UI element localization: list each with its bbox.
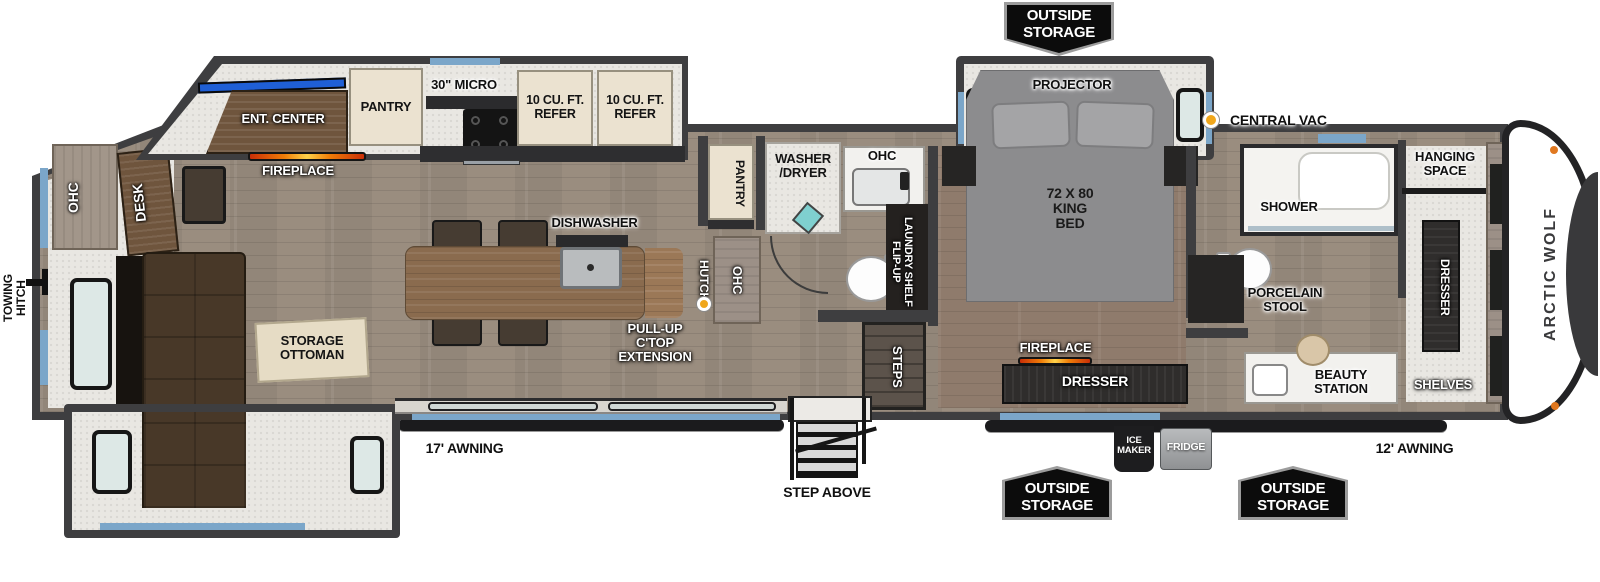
stove-burner (471, 116, 480, 125)
brand-logo: ARCTIC WOLF (1542, 188, 1566, 360)
sectional-sofa-slide-part (142, 412, 246, 508)
outside-storage-label: OUTSIDE STORAGE (1004, 2, 1114, 56)
beauty-station-label: BEAUTY STATION (1296, 368, 1386, 396)
island-chair (432, 316, 482, 346)
outside-storage-label: OUTSIDE STORAGE (1002, 466, 1112, 520)
central-vac-legend-icon (1203, 112, 1219, 128)
rear-window (70, 278, 112, 390)
step-above-label: STEP ABOVE (772, 485, 882, 500)
refer-2-label: 10 CU. FT. REFER (599, 94, 671, 121)
beauty-stool (1296, 334, 1330, 366)
central-vac-label: CENTRAL VAC (1230, 113, 1360, 128)
micro-label: 30" MICRO (418, 78, 510, 92)
bedroom-window-right (1176, 88, 1204, 142)
awning-rear-bar (398, 419, 784, 431)
awning-rear-label: 17' AWNING (412, 441, 517, 456)
bath-ohc-label: OHC (852, 149, 912, 163)
bedroom-fireplace-label: FIREPLACE (998, 341, 1113, 355)
beauty-sink (1252, 364, 1288, 396)
nightstand-left (942, 146, 976, 186)
pantry-counter (708, 220, 754, 229)
pull-up-ctop-label: PULL-UP C'TOP EXTENSION (605, 322, 705, 364)
refer-1-label: 10 CU. FT. REFER (519, 94, 591, 121)
bedroom-slide-window-accent-left (958, 92, 964, 144)
marker-light (1551, 402, 1559, 410)
countertop-extension (645, 248, 683, 318)
outside-storage-banner-bottom-right: OUTSIDE STORAGE (1238, 466, 1348, 520)
floorplan: 17' AWNING 12' AWNING TOWING HITCH OHC D… (0, 0, 1600, 582)
wall-beauty-top (1186, 328, 1248, 338)
sofa-slide-window-bottom (100, 523, 305, 530)
towing-hitch-post (42, 269, 48, 295)
sofa-slide-window-right (350, 436, 384, 494)
fireplace-living-label: FIREPLACE (238, 164, 358, 178)
rear-wall-window-2 (40, 330, 48, 385)
wall-pantry-left (698, 136, 708, 226)
flip-up-laundry-shelf-label: FLIP-UP LAUNDRY SHELF (889, 206, 925, 318)
door-side-window (608, 402, 776, 411)
sofa-slide-window-left (92, 430, 132, 494)
stove-burner (499, 116, 508, 125)
central-vac-port-icon (697, 297, 711, 311)
range-hood (426, 96, 520, 109)
outside-storage-label: OUTSIDE STORAGE (1238, 466, 1348, 520)
door-side-window-strip (412, 414, 780, 420)
bath-faucet (900, 172, 909, 190)
pantry-label: PANTRY (352, 100, 420, 114)
ohc-hutch-label: OHC (726, 244, 744, 316)
wall-bath-bottom (818, 310, 932, 322)
entry-landing (788, 396, 872, 422)
marker-light (1550, 146, 1558, 154)
outside-fridge-label: FRIDGE (1160, 442, 1212, 453)
ohc-rear-label: OHC (66, 158, 96, 238)
awning-front-bar (985, 420, 1447, 432)
dishwasher (556, 235, 628, 247)
dishwasher-label: DISHWASHER (542, 216, 647, 230)
bath-divider-cabinet (1188, 255, 1244, 323)
outside-storage-banner-top: OUTSIDE STORAGE (1004, 2, 1114, 56)
bed-pillow (1075, 101, 1155, 150)
shower-label: SHOWER (1244, 200, 1334, 214)
top-wall-window-bath (1318, 134, 1366, 143)
bedroom-dresser-label: DRESSER (1035, 374, 1155, 389)
bed-pillow (991, 101, 1071, 150)
porcelain-stool-label: PORCELAIN STOOL (1240, 286, 1330, 314)
king-bed-label: 72 X 80 KING BED (1020, 186, 1120, 231)
stove-handle (463, 160, 520, 165)
kitchen-slide-window (430, 58, 500, 65)
hanging-space-label: HANGING SPACE (1404, 150, 1486, 178)
steps-label: STEPS (884, 334, 904, 400)
kitchen-counter (420, 146, 685, 162)
projector-label: PROJECTOR (1017, 78, 1127, 92)
ent-center-label: ENT. CENTER (228, 112, 338, 126)
ice-maker-label: ICE MAKER (1114, 436, 1154, 457)
closet-dresser-label: DRESSER (1431, 232, 1451, 342)
outside-storage-banner-bottom-left: OUTSIDE STORAGE (1002, 466, 1112, 520)
desk-chair (182, 166, 226, 224)
sink-drain (587, 264, 594, 271)
entry-rail-left (790, 398, 794, 480)
fireplace-living (248, 152, 366, 161)
shower-glass (1248, 226, 1394, 231)
bottom-wall-window-bedroom (1000, 413, 1160, 420)
towing-hitch-label: TOWING HITCH (2, 252, 36, 344)
island-chair (498, 316, 548, 346)
door-side-window (428, 402, 598, 411)
wall-bath-left (756, 136, 765, 230)
awning-front-label: 12' AWNING (1362, 441, 1467, 456)
storage-ottoman-label: STORAGE OTTOMAN (262, 334, 362, 362)
pantry-2-label: PANTRY (716, 150, 746, 216)
rear-wall-window (40, 168, 48, 248)
washer-dryer-label: WASHER /DRYER (767, 152, 839, 180)
closet-rod (1402, 188, 1486, 194)
shelves-label: SHELVES (1400, 378, 1486, 392)
wall-bedroom-left (928, 146, 938, 326)
